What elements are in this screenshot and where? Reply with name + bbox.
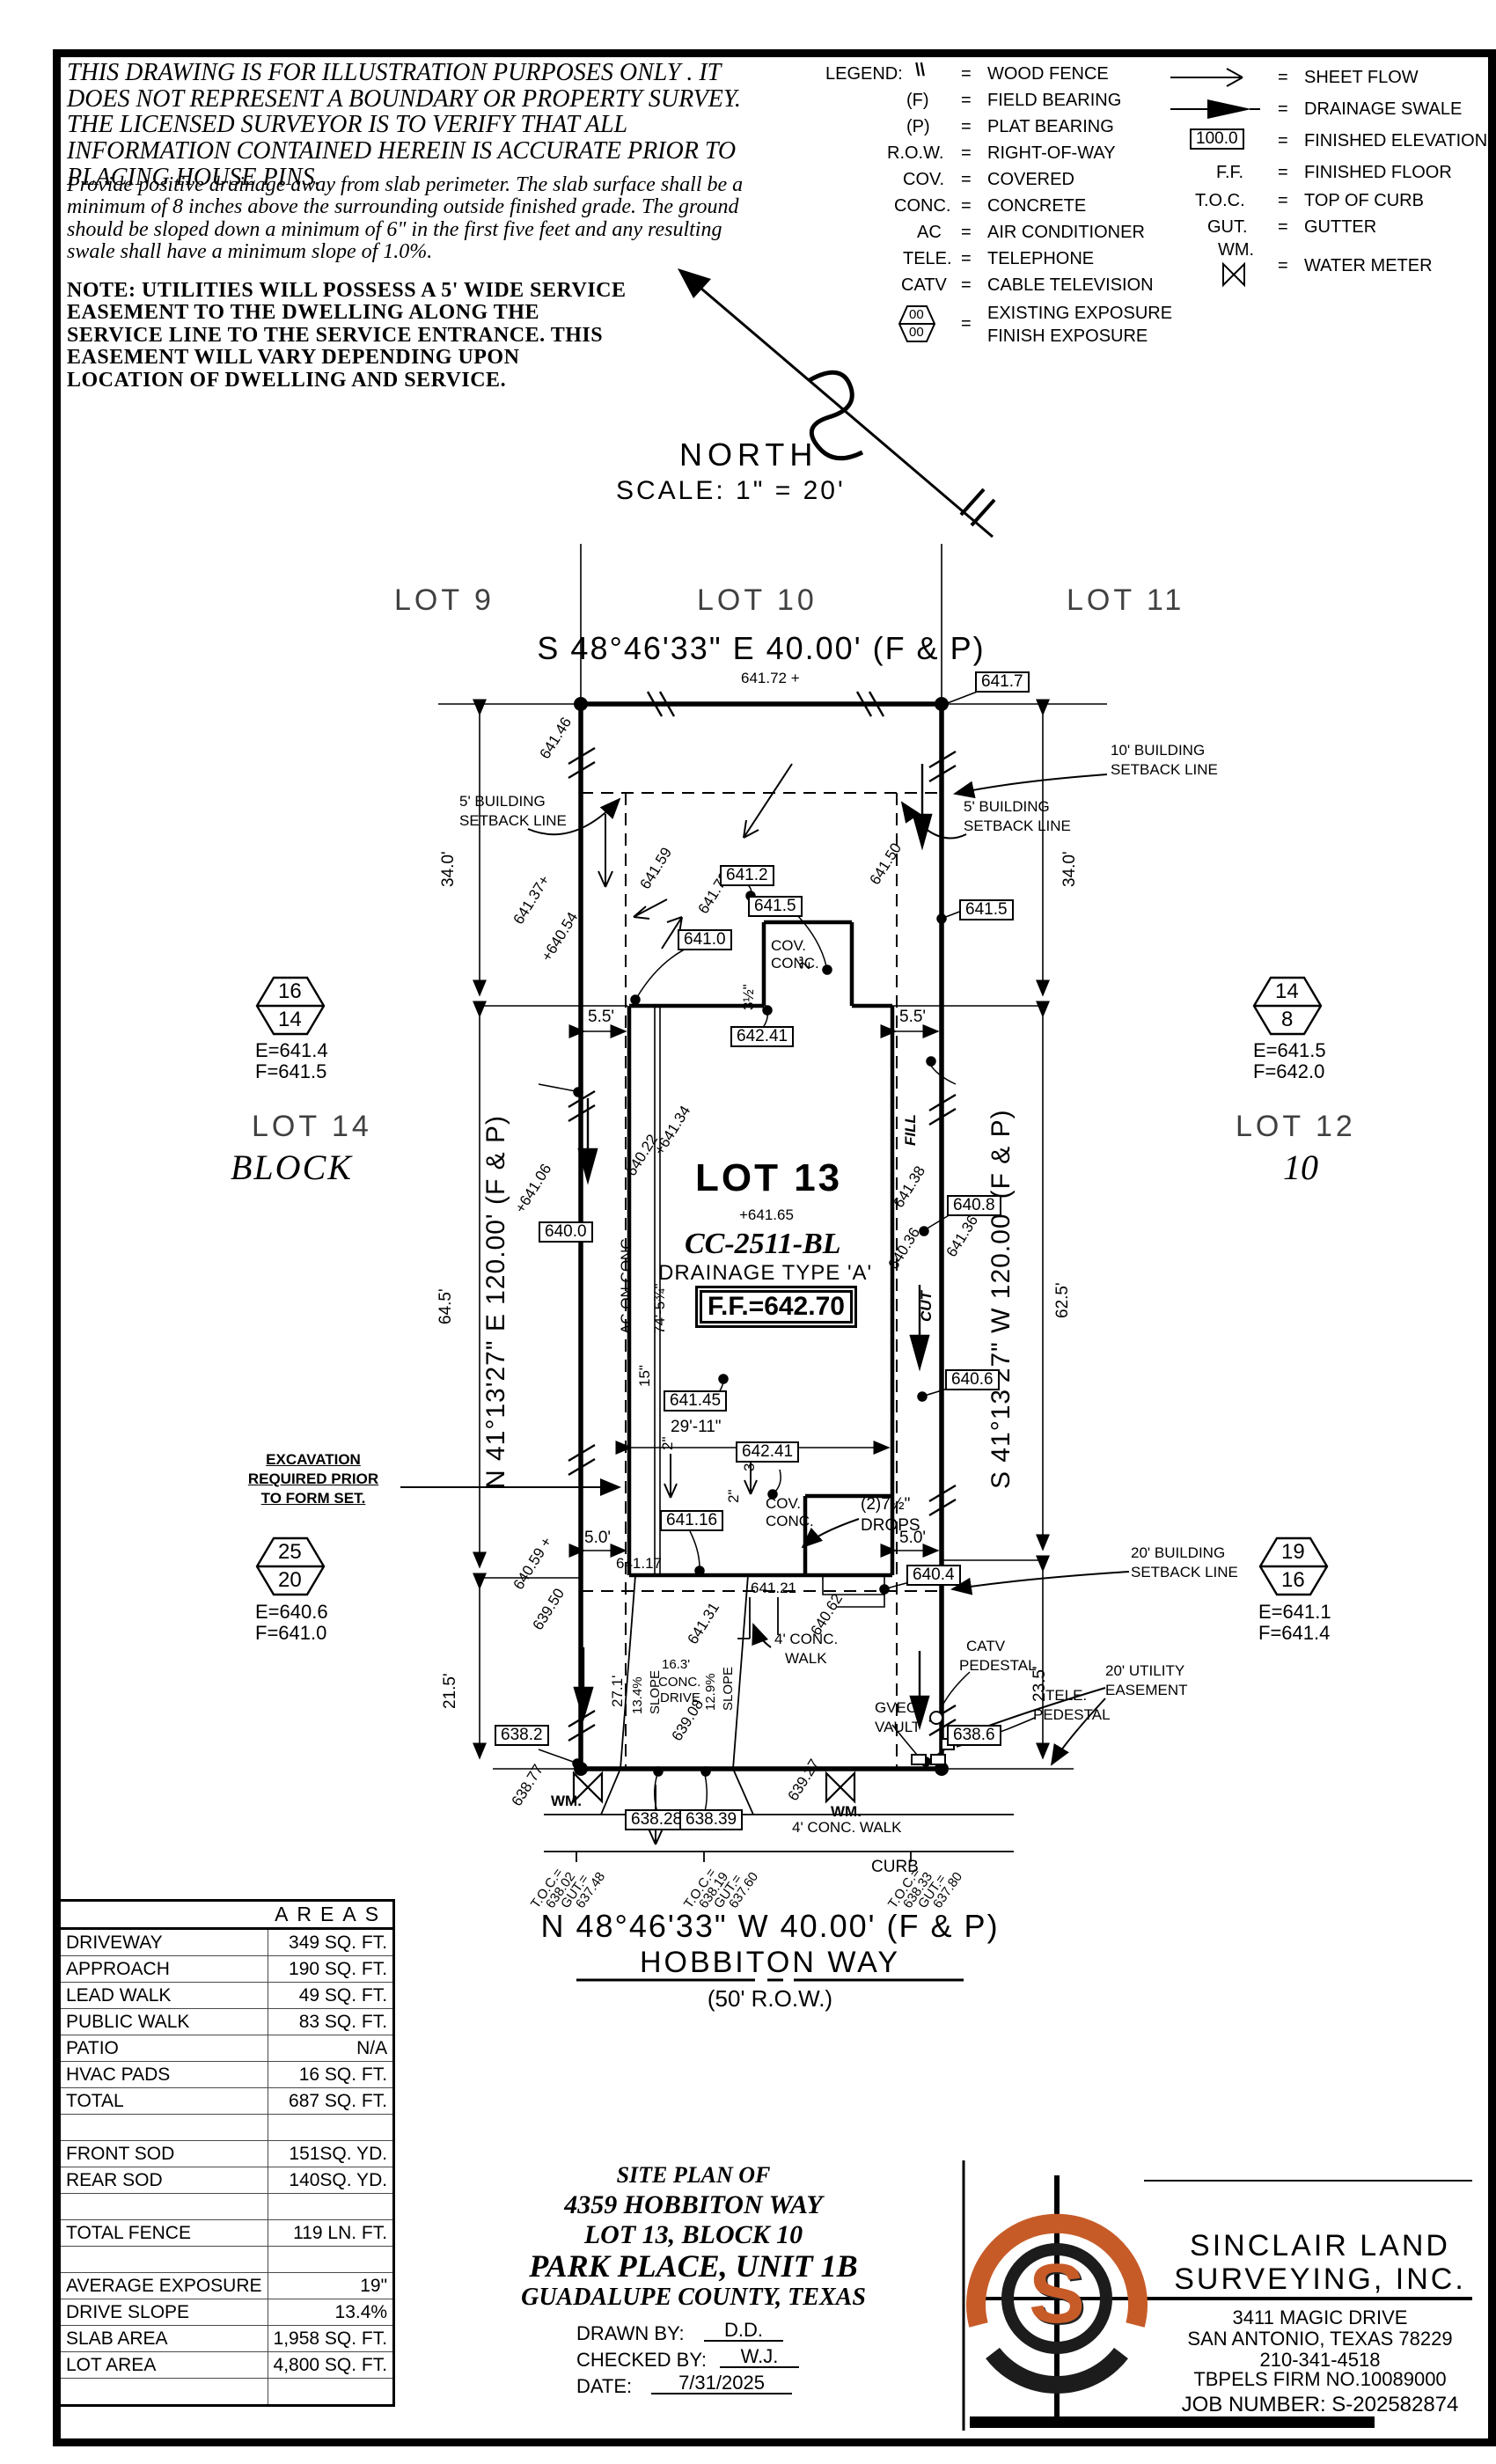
hex1-e: E=641.4 <box>255 1040 328 1060</box>
row-label: AVERAGE EXPOSURE <box>60 2273 268 2299</box>
legend-eq: = <box>961 65 972 84</box>
gut-sym: GUT. <box>1207 218 1248 237</box>
legend-air-conditioner: AIR CONDITIONER <box>987 224 1145 242</box>
hex1-finish: 14 <box>278 1008 302 1030</box>
table-row <box>60 2247 394 2273</box>
hex3-existing: 25 <box>278 1541 302 1563</box>
lead-walk-l1: 4' CONC. <box>774 1632 838 1647</box>
date-label: DATE: <box>576 2376 632 2396</box>
survey-sheet: THIS DRAWING IS FOR ILLUSTRATION PURPOSE… <box>0 0 1496 2464</box>
dim-74-5: 74'-5¾" <box>652 1284 668 1334</box>
finished-floor-elevation: F.F.=642.70 <box>700 1290 853 1324</box>
cut-label: CUT <box>919 1291 935 1322</box>
tele-pedestal-l2: PEDESTAL <box>1033 1707 1111 1723</box>
row-value: 190 SQ. FT. <box>268 1956 394 1983</box>
legend-eq: = <box>961 276 972 295</box>
dim-3half-a: 3½" <box>741 984 757 1010</box>
legend-eq: = <box>1278 164 1288 182</box>
elev-641-2: 641.2 <box>720 865 774 886</box>
legend-eq: = <box>961 250 972 268</box>
ff-sym: F.F. <box>1216 164 1243 182</box>
row-value: 1,958 SQ. FT. <box>268 2326 394 2352</box>
setback-10-l1: 10' BUILDING <box>1111 743 1205 759</box>
row-label: DRIVE SLOPE <box>60 2299 268 2326</box>
table-row: DRIVE SLOPE13.4% <box>60 2299 394 2326</box>
row-label <box>60 2194 268 2220</box>
tele-sym: TELE. <box>903 250 952 268</box>
gvec-vault-l1: GVEC. <box>875 1700 921 1716</box>
row-value: 13.4% <box>268 2299 394 2326</box>
hex3-finish: 20 <box>278 1569 302 1591</box>
checked-by-value: W.J. <box>720 2346 799 2368</box>
dim-2b: 2" <box>726 1490 742 1504</box>
hex2-finish: 8 <box>1281 1008 1293 1030</box>
table-row: AVERAGE EXPOSURE19" <box>60 2273 394 2299</box>
table-row: REAR SOD140SQ. YD. <box>60 2167 394 2194</box>
row-value <box>268 2194 394 2220</box>
areas-title: AREAS <box>60 1901 394 1929</box>
table-row <box>60 2115 394 2141</box>
lot13-label: LOT 13 <box>695 1158 842 1199</box>
tele-pedestal-l1: TELE. <box>1045 1688 1087 1704</box>
row-value: N/A <box>268 2035 394 2062</box>
lot12-label: LOT 12 <box>1236 1111 1356 1142</box>
row-value: 687 SQ. FT. <box>268 2088 394 2115</box>
elev-641-7: 641.7 <box>975 671 1030 693</box>
table-row: TOTAL687 SQ. FT. <box>60 2088 394 2115</box>
legend-finished-elevation: FINISHED ELEVATION <box>1304 132 1487 150</box>
utility-easement-l2: EASEMENT <box>1105 1683 1188 1698</box>
excavation-note-l2: REQUIRED PRIOR <box>236 1471 391 1487</box>
dim-5-0-left: 5.0' <box>584 1529 611 1547</box>
legend-telephone: TELEPHONE <box>987 250 1094 268</box>
fill-label: FILL <box>903 1114 919 1146</box>
legend-gutter: GUTTER <box>1304 218 1376 237</box>
row-value <box>268 2115 394 2141</box>
hex2-f: F=642.0 <box>1253 1061 1324 1082</box>
dim-2c: 2" <box>660 1437 676 1451</box>
row-label: PATIO <box>60 2035 268 2062</box>
row-value: 4,800 SQ. FT. <box>268 2352 394 2379</box>
hex4-finish: 16 <box>1281 1569 1305 1591</box>
lot9-label: LOT 9 <box>394 584 495 616</box>
drive-dim: 16.3' <box>662 1658 690 1672</box>
dim-29-11: 29'-11" <box>671 1419 722 1436</box>
row-value: 140SQ. YD. <box>268 2167 394 2194</box>
wm-sym: WM. <box>1218 241 1254 260</box>
lead-walk-l2: WALK <box>785 1651 827 1667</box>
legend-eq: = <box>961 224 972 242</box>
legend-eq: = <box>961 144 972 163</box>
gvec-vault-l2: VAULT <box>875 1720 920 1735</box>
row-label: PUBLIC WALK <box>60 2009 268 2035</box>
date-value: 7/31/2025 <box>651 2372 792 2394</box>
legend-eq: = <box>1278 132 1288 150</box>
legend-wood-fence: WOOD FENCE <box>987 65 1109 84</box>
firm-tbpels: TBPELS FIRM NO.10089000 <box>1162 2369 1478 2389</box>
row-label: TOTAL FENCE <box>60 2220 268 2247</box>
plat-bearing-sym: (P) <box>906 118 930 136</box>
utility-easement-note: NOTE: UTILITIES WILL POSSESS A 5' WIDE S… <box>67 280 630 392</box>
water-meter-right-label: WM. <box>831 1804 862 1820</box>
drawn-by-value: D.D. <box>704 2320 783 2342</box>
elev-641-0a: 641.0 <box>678 929 732 950</box>
hex2-e: E=641.5 <box>1253 1040 1326 1060</box>
hex4-existing: 19 <box>1281 1541 1305 1563</box>
elev-640-0: 640.0 <box>539 1221 593 1243</box>
checked-by-label: CHECKED BY: <box>576 2350 707 2370</box>
cov-sym: COV. <box>903 171 944 189</box>
row-value: 16 SQ. FT. <box>268 2062 394 2088</box>
dim-5-0-right: 5.0' <box>899 1529 926 1547</box>
scale-label: SCALE: 1" = 20' <box>616 477 846 505</box>
field-bearing-sym: (F) <box>906 92 929 110</box>
row-label: APPROACH <box>60 1956 268 1983</box>
finished-elevation-sym: 100.0 <box>1190 128 1244 150</box>
legend-row: RIGHT-OF-WAY <box>987 144 1116 163</box>
row-value <box>268 2247 394 2273</box>
table-row: SLAB AREA1,958 SQ. FT. <box>60 2326 394 2352</box>
block-label: BLOCK <box>231 1149 353 1186</box>
drive-word1: CONC. <box>658 1676 700 1690</box>
firm-name-l2: SURVEYING, INC. <box>1162 2263 1478 2295</box>
disclaimer-text: THIS DRAWING IS FOR ILLUSTRATION PURPOSE… <box>67 60 787 190</box>
row-value: 49 SQ. FT. <box>268 1983 394 2009</box>
row-label: DRIVEWAY <box>60 1929 268 1956</box>
setback-5l-l2: SETBACK LINE <box>459 813 567 829</box>
dim-2a: 2" <box>797 957 813 971</box>
drawn-by-label: DRAWN BY: <box>576 2323 685 2343</box>
row-label: SLAB AREA <box>60 2326 268 2352</box>
legend-eq: = <box>961 118 972 136</box>
legend-top-of-curb: TOP OF CURB <box>1304 192 1424 210</box>
legend-plat-bearing: PLAT BEARING <box>987 118 1114 136</box>
legend-eq: = <box>961 171 972 189</box>
legend-water-meter: WATER METER <box>1304 257 1433 275</box>
legend-concrete: CONCRETE <box>987 197 1086 216</box>
table-row: LOT AREA4,800 SQ. FT. <box>60 2352 394 2379</box>
hex3-f: F=641.0 <box>255 1623 326 1643</box>
dim-15: 15" <box>637 1365 653 1387</box>
hex3-e: E=640.6 <box>255 1602 328 1622</box>
catv-sym: CATV <box>901 276 947 295</box>
table-row: APPROACH190 SQ. FT. <box>60 1956 394 1983</box>
hex1-existing: 16 <box>278 980 302 1002</box>
row-label: FRONT SOD <box>60 2141 268 2167</box>
setback-20-l2: SETBACK LINE <box>1131 1565 1238 1580</box>
legend-drainage-swale: DRAINAGE SWALE <box>1304 100 1462 119</box>
utility-easement-l1: 20' UTILITY <box>1105 1663 1184 1679</box>
legend-eq: = <box>1278 218 1288 237</box>
public-walk-label: 4' CONC. WALK <box>792 1820 901 1836</box>
legend-covered: COVERED <box>987 171 1074 189</box>
row-value: 151SQ. YD. <box>268 2141 394 2167</box>
spot-641-72: 641.72 + <box>741 671 800 686</box>
setback-5r-l2: SETBACK LINE <box>964 818 1071 834</box>
toc-sym: T.O.C. <box>1195 192 1245 210</box>
row-label: LOT AREA <box>60 2352 268 2379</box>
spot-641-17: 641.17 <box>616 1556 662 1572</box>
public-sidewalk <box>544 1815 1014 1862</box>
elev-638-2: 638.2 <box>495 1725 549 1746</box>
row-label: LEAD WALK <box>60 1983 268 2009</box>
row-label <box>60 2247 268 2273</box>
lot10-label: LOT 10 <box>697 584 818 616</box>
elev-640-8: 640.8 <box>947 1195 1001 1216</box>
legend-sheet-flow: SHEET FLOW <box>1304 69 1419 87</box>
ac-sym: AC <box>917 224 942 242</box>
row-value <box>268 2379 394 2406</box>
row-label <box>60 2115 268 2141</box>
row-label: TOTAL <box>60 2088 268 2115</box>
row-label: REAR SOD <box>60 2167 268 2194</box>
elev-642-41a: 642.41 <box>730 1026 794 1047</box>
dim-64-5: 64.5' <box>437 1288 455 1324</box>
hex4-e: E=641.1 <box>1258 1602 1331 1622</box>
legend-catv: CABLE TELEVISION <box>987 276 1154 295</box>
table-row: FRONT SOD151SQ. YD. <box>60 2141 394 2167</box>
table-row: HVAC PADS16 SQ. FT. <box>60 2062 394 2088</box>
legend-eq: = <box>1278 257 1288 275</box>
spot-641-65: +641.65 <box>739 1207 794 1223</box>
drive-slope2-word: SLOPE <box>722 1667 736 1711</box>
dim-5-5-right: 5.5' <box>899 1008 926 1026</box>
catv-pedestal-l2: PEDESTAL <box>959 1658 1037 1674</box>
block10-label: 10 <box>1283 1149 1318 1186</box>
setback-5l-l1: 5' BUILDING <box>459 794 546 810</box>
areas-table: AREAS DRIVEWAY349 SQ. FT. APPROACH190 SQ… <box>58 1899 395 2407</box>
job-number: JOB NUMBER: S-202582874 <box>1155 2394 1485 2416</box>
street-name: HOBBITON WAY <box>616 1947 924 1978</box>
elev-641-16: 641.16 <box>660 1510 723 1531</box>
table-row: PUBLIC WALK83 SQ. FT. <box>60 2009 394 2035</box>
row-value: 19" <box>268 2273 394 2299</box>
ac-on-conc: AC ON CONC. <box>619 1235 634 1334</box>
dim-34-right: 34.0' <box>1061 851 1079 887</box>
cov-conc-rear-l1: COV. <box>771 938 806 954</box>
lot14-label: LOT 14 <box>252 1111 372 1142</box>
spot-641-21: 641.21 <box>751 1580 796 1596</box>
dim-34-left: 34.0' <box>440 851 458 887</box>
table-row: DRIVEWAY349 SQ. FT. <box>60 1929 394 1956</box>
hex1-f: F=641.5 <box>255 1061 326 1082</box>
cov-conc-front-l2: CONC. <box>766 1514 814 1529</box>
conc-sym: CONC. <box>894 197 950 216</box>
row-label <box>60 2379 268 2406</box>
legend-eq: = <box>961 197 972 216</box>
firm-address-l1: 3411 MAGIC DRIVE <box>1162 2307 1478 2328</box>
table-row <box>60 2379 394 2406</box>
legend-title: LEGEND: <box>825 65 903 84</box>
wood-fence-icon: \\ <box>915 62 925 80</box>
table-row: PATION/A <box>60 2035 394 2062</box>
table-row: LEAD WALK49 SQ. FT. <box>60 1983 394 2009</box>
drops-l1: (2)7½" <box>861 1496 910 1514</box>
setback-20-l1: 20' BUILDING <box>1131 1545 1225 1561</box>
setback-5r-l1: 5' BUILDING <box>964 799 1050 815</box>
row-value: 83 SQ. FT. <box>268 2009 394 2035</box>
bearing-left: N 41°13'27" E 120.00' (F & P) <box>482 1115 510 1489</box>
water-meter-left-label: WM. <box>551 1793 582 1809</box>
cov-conc-front-l1: COV. <box>766 1496 801 1512</box>
row-label: HVAC PADS <box>60 2062 268 2088</box>
setback-10-l2: SETBACK LINE <box>1111 762 1218 778</box>
bearing-top: S 48°46'33" E 40.00' (F & P) <box>510 632 1012 665</box>
drainage-type: DRAINAGE TYPE 'A' <box>658 1262 872 1284</box>
dim-62-5: 62.5' <box>1054 1282 1072 1318</box>
legend-eq: = <box>1278 69 1288 87</box>
model-number: CC-2511-BL <box>685 1228 841 1260</box>
hex-bottom-value: 00 <box>909 326 924 340</box>
elev-641-5a: 641.5 <box>748 896 803 917</box>
street-row: (50' R.O.W.) <box>649 1987 891 2012</box>
lot11-label: LOT 11 <box>1067 584 1184 616</box>
excavation-note-l1: EXCAVATION <box>236 1452 391 1468</box>
drainage-note: Provide positive drainage away from slab… <box>67 174 771 264</box>
hex2-existing: 14 <box>1275 980 1299 1002</box>
legend-finish-exposure: FINISH EXPOSURE <box>987 327 1148 346</box>
excavation-note-l3: TO FORM SET. <box>236 1491 391 1507</box>
north-label: NORTH <box>679 438 818 472</box>
elev-641-45: 641.45 <box>664 1390 727 1412</box>
legend-eq: = <box>1278 100 1288 119</box>
legend-eq: = <box>961 315 972 334</box>
elev-640-6: 640.6 <box>945 1369 1000 1390</box>
hex4-f: F=641.4 <box>1258 1623 1330 1643</box>
legend-field-bearing: FIELD BEARING <box>987 92 1121 110</box>
table-row <box>60 2194 394 2220</box>
firm-phone: 210-341-4518 <box>1162 2350 1478 2370</box>
drive-slope1-pct: 13.4% <box>631 1676 645 1714</box>
elev-638-6: 638.6 <box>947 1725 1001 1746</box>
elev-638-39: 638.39 <box>679 1809 743 1830</box>
elev-640-4: 640.4 <box>906 1565 961 1586</box>
row-sym: R.O.W. <box>887 144 943 163</box>
firm-name-l1: SINCLAIR LAND <box>1162 2230 1478 2262</box>
legend-existing-exposure: EXISTING EXPOSURE <box>987 304 1172 323</box>
bearing-bottom: N 48°46'33" W 40.00' (F & P) <box>519 1910 1021 1943</box>
elev-642-41b: 642.41 <box>736 1441 799 1463</box>
title-line2: 4359 HOBBITON WAY <box>500 2191 887 2219</box>
legend-finished-floor: FINISHED FLOOR <box>1304 164 1452 182</box>
dim-21-5: 21.5' <box>442 1673 459 1709</box>
title-line1: SITE PLAN OF <box>500 2163 887 2188</box>
legend-eq: = <box>1278 192 1288 210</box>
table-row: TOTAL FENCE119 LN. FT. <box>60 2220 394 2247</box>
firm-address-l2: SAN ANTONIO, TEXAS 78229 <box>1162 2328 1478 2349</box>
catv-pedestal-l1: CATV <box>966 1639 1005 1654</box>
hex-top-value: 00 <box>909 308 924 322</box>
elev-641-5b: 641.5 <box>959 899 1014 920</box>
bearing-right: S 41°13'27" W 120.00' (F & P) <box>987 1109 1016 1489</box>
dim-5-5-left: 5.5' <box>588 1008 614 1026</box>
row-value: 349 SQ. FT. <box>268 1929 394 1956</box>
title-line3: LOT 13, BLOCK 10 <box>500 2221 887 2249</box>
title-line4: PARK PLACE, UNIT 1B <box>500 2249 887 2283</box>
dim-27-1: 27.1' <box>610 1676 626 1707</box>
row-value: 119 LN. FT. <box>268 2220 394 2247</box>
title-line5: GUADALUPE COUNTY, TEXAS <box>500 2284 887 2311</box>
legend-eq: = <box>961 92 972 110</box>
firm-logo-letter: S <box>1023 2246 1090 2343</box>
